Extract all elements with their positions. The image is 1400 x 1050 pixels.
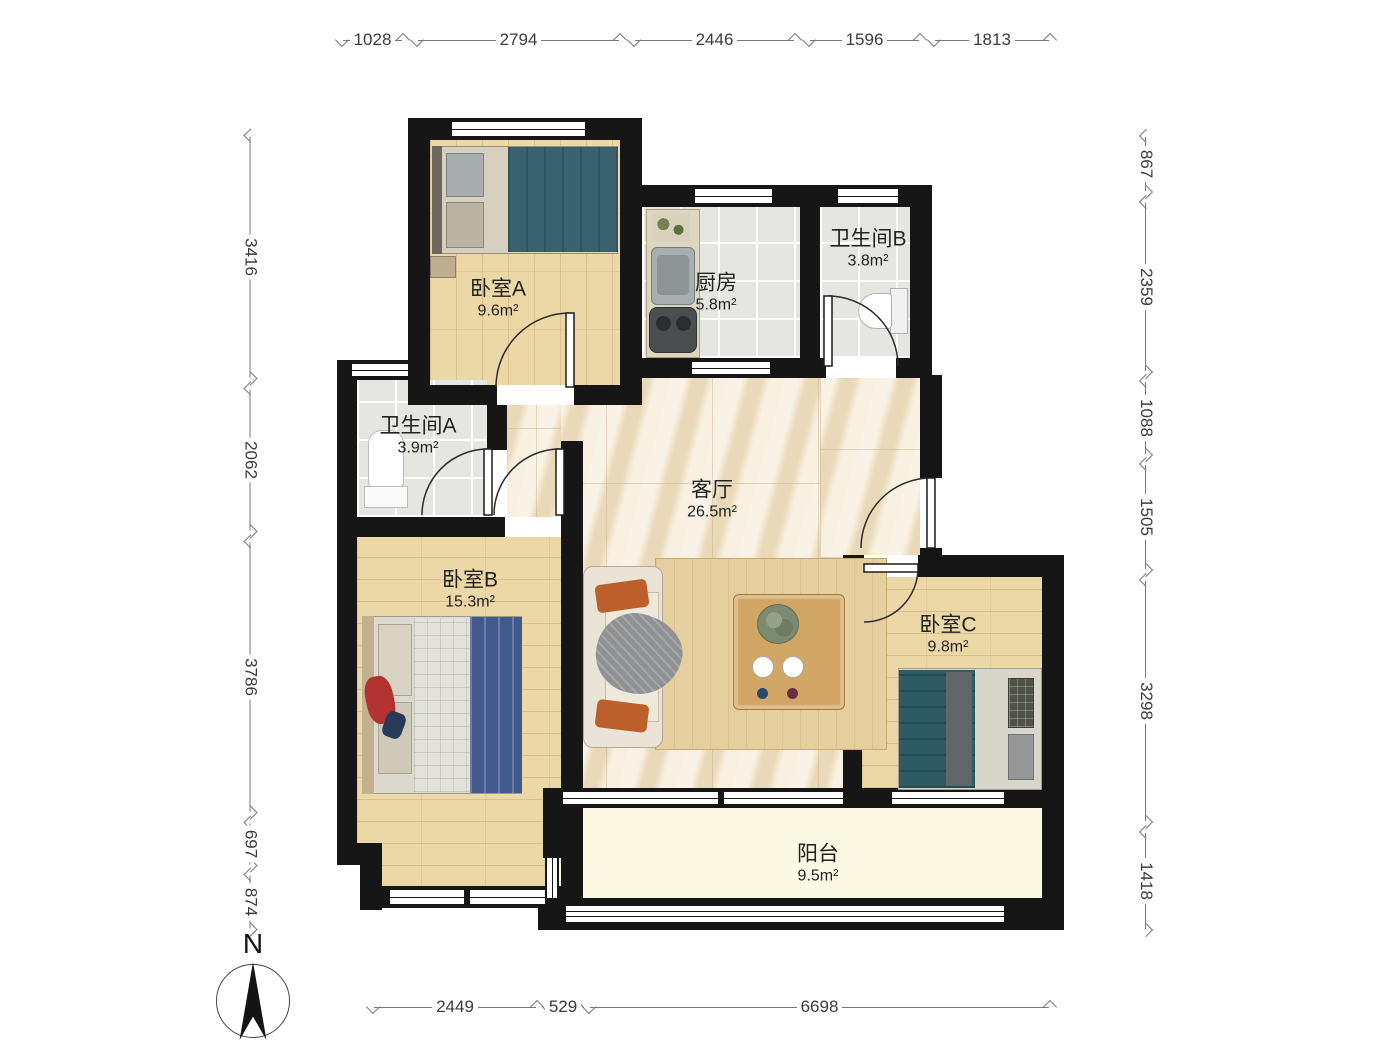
door-arc (496, 313, 570, 387)
door-leaf (484, 449, 492, 515)
room-area: 9.5m² (797, 867, 839, 887)
door-arc (422, 449, 488, 515)
room-area: 26.5m² (687, 503, 737, 523)
room-name: 卧室C (919, 613, 976, 638)
room-label-bathroom-a: 卫生间A 3.9m² (379, 414, 456, 459)
room-label-living: 客厅 26.5m² (687, 478, 737, 523)
door-arc (494, 449, 560, 515)
room-name: 阳台 (797, 842, 839, 867)
north-label: N (236, 928, 270, 960)
doors-layer (0, 0, 1400, 1050)
door-leaf (556, 449, 564, 515)
door-leaf (927, 478, 935, 548)
room-area: 5.8m² (695, 296, 737, 316)
room-label-bedroom-b: 卧室B 15.3m² (442, 568, 498, 613)
room-area: 15.3m² (442, 593, 498, 613)
room-name: 卫生间B (829, 227, 906, 252)
room-name: 厨房 (695, 271, 737, 296)
room-name: 卧室A (470, 277, 526, 302)
room-label-kitchen: 厨房 5.8m² (695, 271, 737, 316)
door-leaf (566, 313, 574, 387)
room-area: 3.9m² (379, 439, 456, 459)
room-label-balcony: 阳台 9.5m² (797, 842, 839, 887)
door-leaf (864, 564, 918, 572)
room-label-bedroom-a: 卧室A 9.6m² (470, 277, 526, 322)
room-area: 9.6m² (470, 302, 526, 322)
room-area: 3.8m² (829, 252, 906, 272)
room-name: 客厅 (687, 478, 737, 503)
room-name: 卧室B (442, 568, 498, 593)
room-label-bathroom-b: 卫生间B 3.8m² (829, 227, 906, 272)
door-arc (864, 568, 918, 622)
room-name: 卫生间A (379, 414, 456, 439)
room-area: 9.8m² (919, 638, 976, 658)
door-leaf (824, 296, 832, 366)
door-arc (828, 296, 898, 366)
door-arc (861, 478, 931, 548)
floor-plan: 卧室A 9.6m² 厨房 5.8m² 卫生间B 3.8m² 卫生间A 3.9m²… (0, 0, 1400, 1050)
room-label-bedroom-c: 卧室C 9.8m² (919, 613, 976, 658)
